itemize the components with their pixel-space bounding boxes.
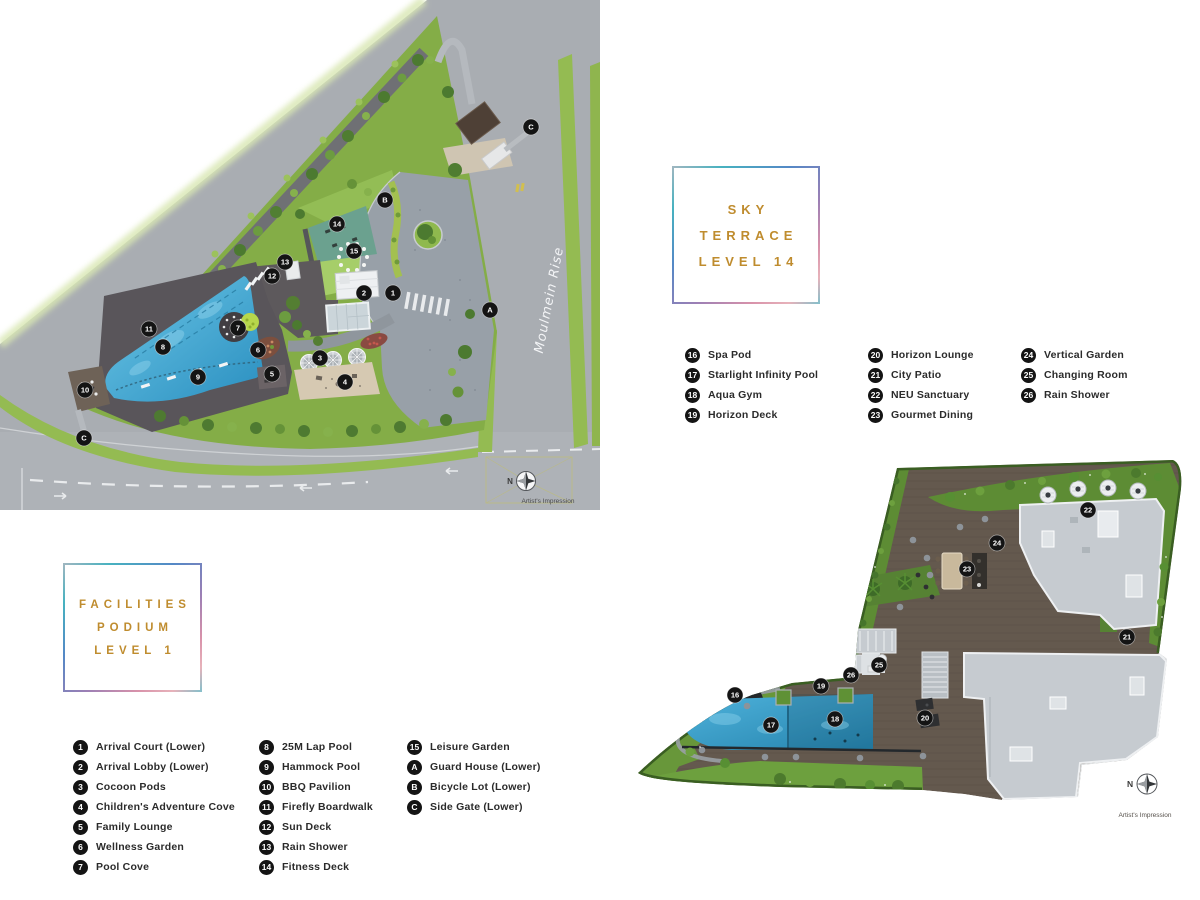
legend-item: 2Arrival Lobby (Lower) (73, 757, 235, 777)
title-line: LEVEL 14 (694, 254, 799, 269)
legend-marker-badge: 23 (868, 408, 883, 423)
legend-item-label: Horizon Lounge (891, 349, 974, 361)
plan-marker-label: 11 (145, 325, 153, 334)
legend-item: 16Spa Pod (685, 345, 818, 365)
legend-item: 10BBQ Pavilion (259, 777, 373, 797)
plan-marker-label: 9 (196, 373, 200, 382)
legend-item-label: Bicycle Lot (Lower) (430, 781, 531, 793)
plan-marker-label: 10 (81, 386, 89, 395)
site-plan-sky-terrace-map: N Artist's Impression 222423212526191620… (630, 447, 1185, 819)
plan-marker-label: A (487, 306, 493, 315)
legend-item: 4Children's Adventure Cove (73, 797, 235, 817)
legend-item: 25Changing Room (1021, 365, 1128, 385)
plan-marker-label: 5 (270, 370, 274, 379)
legend-item: CSide Gate (Lower) (407, 797, 541, 817)
legend-item-label: Guard House (Lower) (430, 761, 541, 773)
title-line: LEVEL 1 (89, 645, 175, 657)
legend-marker-badge: 24 (1021, 348, 1036, 363)
sky-legend-column-2: 20Horizon Lounge21City Patio22NEU Sanctu… (868, 345, 974, 425)
legend-marker-badge: 6 (73, 840, 88, 855)
plan-marker-label: 14 (333, 220, 342, 229)
legend-item: 24Vertical Garden (1021, 345, 1128, 365)
plan-marker-label: C (81, 434, 87, 443)
legend-item: 26Rain Shower (1021, 385, 1128, 405)
title-line: FACILITIES (74, 599, 191, 611)
plan-marker-label: 20 (921, 714, 929, 723)
legend-item-label: Wellness Garden (96, 841, 184, 853)
plan-marker-label: 22 (1084, 506, 1092, 515)
legend-marker-badge: 1 (73, 740, 88, 755)
artist-impression-note: Artist's Impression (522, 498, 575, 505)
legend-item: 21City Patio (868, 365, 974, 385)
sky-legend-column-1: 16Spa Pod17Starlight Infinity Pool18Aqua… (685, 345, 818, 425)
legend-item: 6Wellness Garden (73, 837, 235, 857)
compass-n-label: N (507, 477, 513, 486)
plan-marker-label: 16 (731, 691, 739, 700)
legend-marker-badge: 13 (259, 840, 274, 855)
plan-marker-label: 7 (236, 324, 240, 333)
title-line: TERRACE (695, 228, 798, 243)
legend-marker-badge: C (407, 800, 422, 815)
legend-marker-badge: 11 (259, 800, 274, 815)
site-plan-podium-map: Moulmein Rise N Artist's Impression CB14… (0, 0, 600, 510)
legend-marker-badge: A (407, 760, 422, 775)
plan-marker-label: 8 (161, 343, 165, 352)
plan-marker-label: 1 (391, 289, 395, 298)
plan-marker-label: 2 (362, 289, 366, 298)
legend-item: 23Gourmet Dining (868, 405, 974, 425)
podium-legend-column-2: 825M Lap Pool9Hammock Pool10BBQ Pavilion… (259, 737, 373, 877)
legend-item: 11Firefly Boardwalk (259, 797, 373, 817)
legend-item: 5Family Lounge (73, 817, 235, 837)
legend-marker-badge: 9 (259, 760, 274, 775)
glass-canopy (326, 303, 370, 332)
legend-item-label: Aqua Gym (708, 389, 762, 401)
legend-marker-badge: 20 (868, 348, 883, 363)
legend-item-label: Family Lounge (96, 821, 173, 833)
legend-marker-badge: 22 (868, 388, 883, 403)
plan-marker-label: 17 (767, 721, 775, 730)
legend-item-label: Gourmet Dining (891, 409, 973, 421)
legend-item-label: Firefly Boardwalk (282, 801, 373, 813)
legend-item: BBicycle Lot (Lower) (407, 777, 541, 797)
brochure-page: Moulmein Rise N Artist's Impression CB14… (0, 0, 1200, 900)
legend-item: 14Fitness Deck (259, 857, 373, 877)
legend-marker-badge: B (407, 780, 422, 795)
plan-marker-label: C (528, 123, 534, 132)
legend-item-label: Arrival Lobby (Lower) (96, 761, 209, 773)
legend-item-label: BBQ Pavilion (282, 781, 351, 793)
legend-item-label: Pool Cove (96, 861, 149, 873)
legend-marker-badge: 15 (407, 740, 422, 755)
legend-marker-badge: 26 (1021, 388, 1036, 403)
legend-item-label: NEU Sanctuary (891, 389, 969, 401)
legend-item-label: Rain Shower (282, 841, 348, 853)
legend-item-label: Cocoon Pods (96, 781, 166, 793)
sky-terrace-title-box: SKY TERRACE LEVEL 14 (672, 166, 820, 304)
legend-marker-badge: 2 (73, 760, 88, 775)
legend-item: 12Sun Deck (259, 817, 373, 837)
legend-marker-badge: 10 (259, 780, 274, 795)
plan-marker-label: B (382, 196, 388, 205)
legend-item: 18Aqua Gym (685, 385, 818, 405)
legend-marker-badge: 17 (685, 368, 700, 383)
plan-marker-label: 25 (875, 661, 883, 670)
legend-item-label: Sun Deck (282, 821, 331, 833)
plan-marker-label: 12 (268, 272, 276, 281)
legend-item-label: Vertical Garden (1044, 349, 1124, 361)
plan-marker-label: 13 (281, 258, 289, 267)
legend-marker-badge: 4 (73, 800, 88, 815)
legend-marker-badge: 5 (73, 820, 88, 835)
title-line: PODIUM (92, 622, 173, 634)
legend-marker-badge: 3 (73, 780, 88, 795)
legend-marker-badge: 14 (259, 860, 274, 875)
legend-marker-badge: 12 (259, 820, 274, 835)
legend-marker-badge: 18 (685, 388, 700, 403)
legend-marker-badge: 7 (73, 860, 88, 875)
north-compass: N (1127, 774, 1157, 794)
legend-item-label: City Patio (891, 369, 941, 381)
plan-marker-label: 23 (963, 565, 971, 574)
podium-legend-column-1: 1Arrival Court (Lower)2Arrival Lobby (Lo… (73, 737, 235, 877)
legend-marker-badge: 25 (1021, 368, 1036, 383)
plan-marker-label: 6 (256, 346, 260, 355)
legend-item: 825M Lap Pool (259, 737, 373, 757)
podium-legend-column-3: 15Leisure GardenAGuard House (Lower)BBic… (407, 737, 541, 817)
legend-item: 1Arrival Court (Lower) (73, 737, 235, 757)
legend-item-label: Spa Pod (708, 349, 751, 361)
legend-item-label: Children's Adventure Cove (96, 801, 235, 813)
legend-item-label: Starlight Infinity Pool (708, 369, 818, 381)
legend-item: 15Leisure Garden (407, 737, 541, 757)
legend-marker-badge: 16 (685, 348, 700, 363)
plan-marker-label: 24 (993, 539, 1002, 548)
plan-marker-label: 18 (831, 715, 839, 724)
legend-item: 22NEU Sanctuary (868, 385, 974, 405)
artist-impression-note: Artist's Impression (1119, 812, 1172, 819)
legend-marker-badge: 19 (685, 408, 700, 423)
legend-item: 17Starlight Infinity Pool (685, 365, 818, 385)
plan-marker-label: 19 (817, 682, 825, 691)
legend-item: AGuard House (Lower) (407, 757, 541, 777)
legend-item-label: Leisure Garden (430, 741, 510, 753)
legend-item-label: Fitness Deck (282, 861, 349, 873)
legend-item: 3Cocoon Pods (73, 777, 235, 797)
plan-marker-label: 26 (847, 671, 855, 680)
legend-marker-badge: 8 (259, 740, 274, 755)
title-line: SKY (723, 202, 770, 217)
legend-item-label: Arrival Court (Lower) (96, 741, 205, 753)
legend-item-label: Hammock Pool (282, 761, 360, 773)
legend-item-label: Rain Shower (1044, 389, 1110, 401)
plan-marker-label: 15 (350, 247, 358, 256)
legend-item-label: Side Gate (Lower) (430, 801, 523, 813)
legend-marker-badge: 21 (868, 368, 883, 383)
legend-item-label: 25M Lap Pool (282, 741, 352, 753)
sky-legend-column-3: 24Vertical Garden25Changing Room26Rain S… (1021, 345, 1128, 405)
legend-item: 20Horizon Lounge (868, 345, 974, 365)
legend-item-label: Changing Room (1044, 369, 1128, 381)
plan-marker-label: 3 (318, 354, 322, 363)
compass-n-label: N (1127, 779, 1133, 789)
legend-item: 7Pool Cove (73, 857, 235, 877)
legend-item: 9Hammock Pool (259, 757, 373, 777)
legend-item: 19Horizon Deck (685, 405, 818, 425)
legend-item: 13Rain Shower (259, 837, 373, 857)
plan-marker-label: 21 (1123, 633, 1131, 642)
facilities-podium-title-box: FACILITIES PODIUM LEVEL 1 (63, 563, 202, 692)
legend-item-label: Horizon Deck (708, 409, 778, 421)
